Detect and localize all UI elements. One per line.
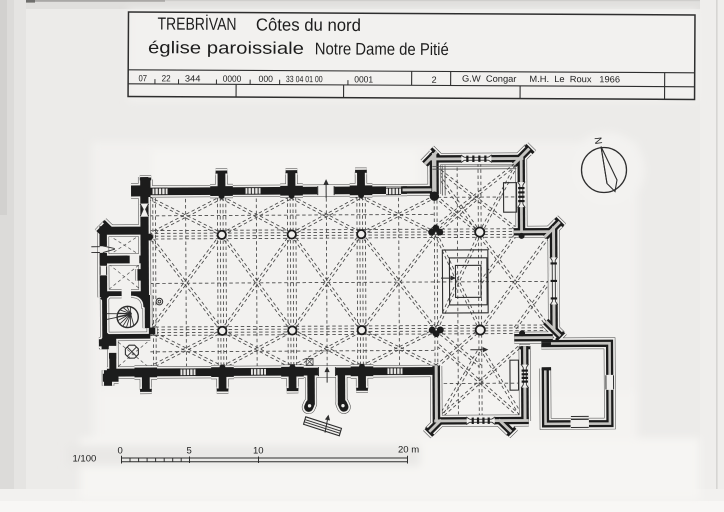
svg-text:5: 5 [187, 446, 192, 457]
svg-text:344: 344 [185, 73, 201, 83]
svg-text:0000: 0000 [223, 74, 242, 84]
svg-text:TREBRİVAN: TREBRİVAN [157, 14, 236, 34]
svg-text:10: 10 [253, 446, 264, 457]
svg-text:22: 22 [162, 73, 171, 83]
svg-text:église paroissiale: église paroissiale [148, 38, 304, 58]
svg-text:0: 0 [118, 446, 123, 457]
svg-text:G.W Congar M.H. Le Roux: G.W Congar M.H. Le Roux 1966 [462, 74, 620, 85]
svg-text:N: N [592, 137, 604, 146]
svg-text:33 04 01 00: 33 04 01 00 [286, 74, 323, 84]
svg-text:Notre Dame de Pitié: Notre Dame de Pitié [315, 39, 449, 59]
svg-text:0001: 0001 [354, 74, 373, 84]
svg-text:Côtes du nord: Côtes du nord [256, 14, 361, 35]
svg-text:000: 000 [259, 74, 273, 84]
svg-text:20 m: 20 m [398, 445, 419, 456]
svg-text:2: 2 [432, 75, 437, 85]
svg-text:1/100: 1/100 [73, 454, 97, 465]
svg-text:07: 07 [139, 73, 148, 83]
